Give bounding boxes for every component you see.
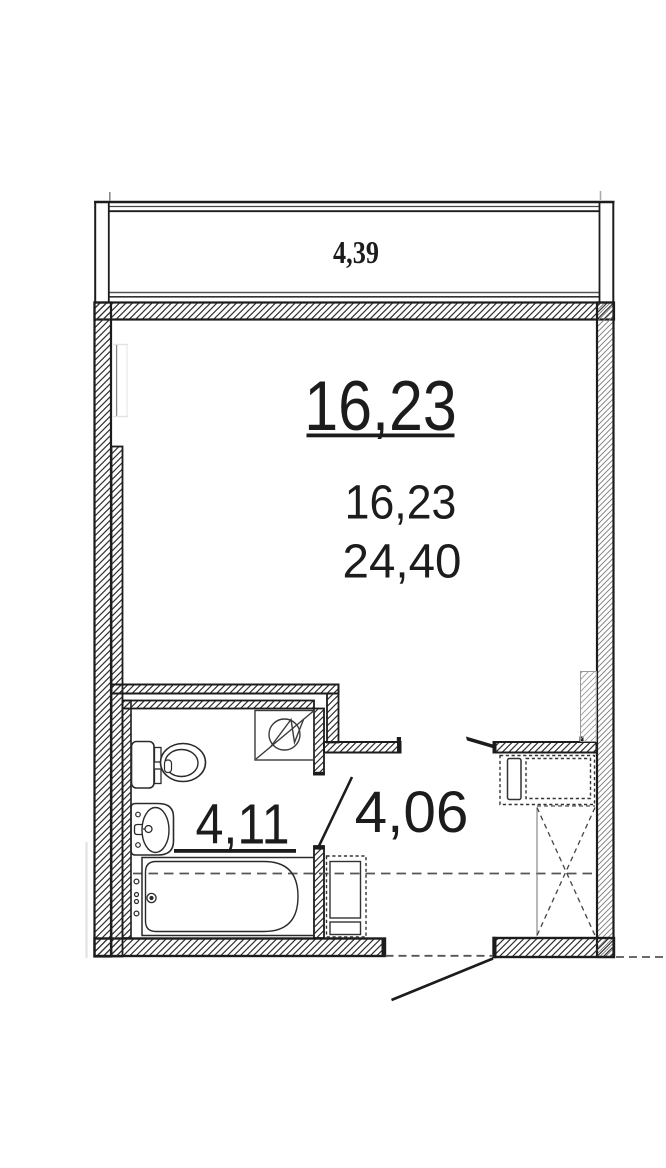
svg-text:4,39: 4,39 (333, 236, 379, 271)
svg-text:16,23: 16,23 (304, 366, 457, 445)
svg-text:16,23: 16,23 (345, 475, 457, 529)
svg-text:4,11: 4,11 (195, 794, 289, 856)
svg-text:24,40: 24,40 (343, 535, 462, 588)
svg-text:4,06: 4,06 (355, 780, 469, 845)
